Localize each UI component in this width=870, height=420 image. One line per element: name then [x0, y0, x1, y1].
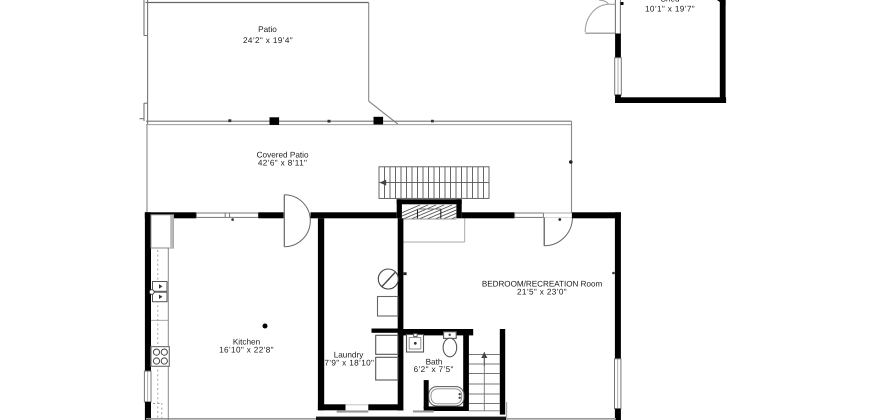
svg-text:21’5" x 23’0": 21’5" x 23’0": [517, 288, 567, 297]
svg-text:7’9" x 18’10": 7’9" x 18’10": [324, 358, 374, 367]
svg-text:16’10" x 22’8": 16’10" x 22’8": [219, 346, 274, 355]
svg-text:Shed: Shed: [660, 0, 680, 4]
svg-text:Patio: Patio: [258, 25, 277, 34]
svg-text:42’6" x 8’11": 42’6" x 8’11": [258, 158, 307, 167]
svg-text:24’2" x 19’4": 24’2" x 19’4": [243, 36, 293, 45]
svg-text:6’2" x 7’5": 6’2" x 7’5": [414, 365, 454, 374]
svg-text:10’1" x 19’7": 10’1" x 19’7": [645, 5, 695, 14]
